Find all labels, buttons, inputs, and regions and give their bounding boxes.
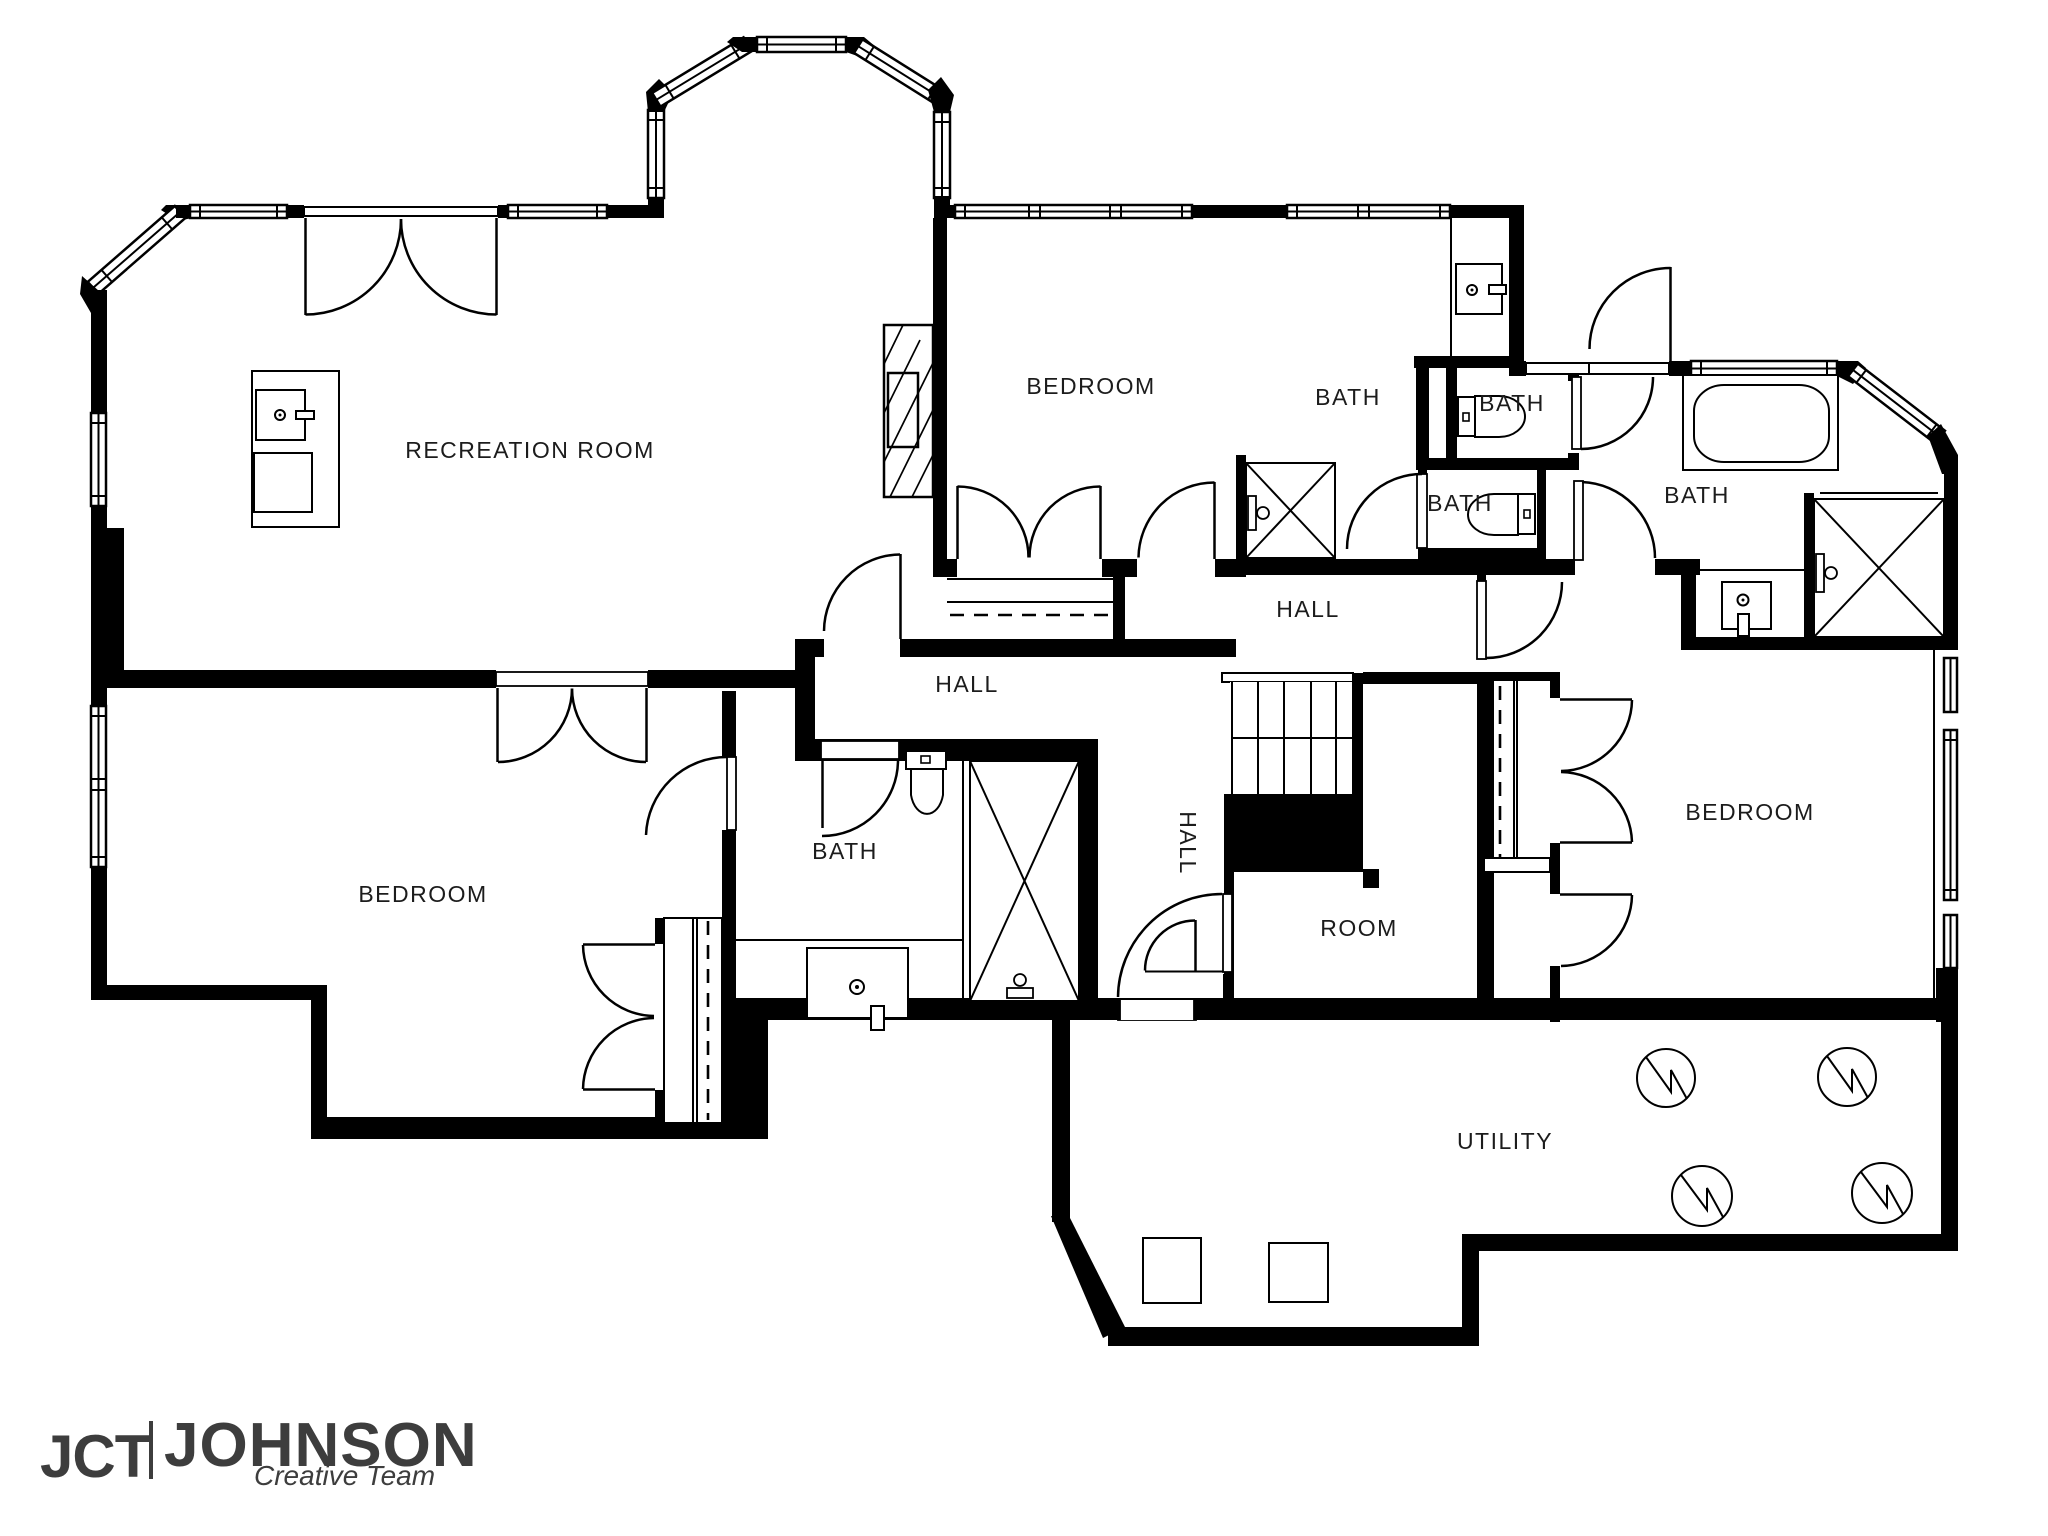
- svg-text:BATH: BATH: [1315, 384, 1381, 410]
- svg-text:UTILITY: UTILITY: [1457, 1128, 1553, 1154]
- svg-text:HALL: HALL: [1175, 811, 1201, 875]
- svg-text:HALL: HALL: [935, 671, 999, 697]
- svg-text:BEDROOM: BEDROOM: [358, 881, 487, 907]
- svg-text:JCT: JCT: [40, 1423, 151, 1490]
- svg-text:BEDROOM: BEDROOM: [1685, 799, 1814, 825]
- svg-text:Creative Team: Creative Team: [254, 1460, 435, 1491]
- svg-text:BATH: BATH: [1664, 482, 1730, 508]
- svg-text:HALL: HALL: [1276, 596, 1340, 622]
- svg-text:BATH: BATH: [812, 838, 878, 864]
- svg-text:BEDROOM: BEDROOM: [1026, 373, 1155, 399]
- svg-text:BATH: BATH: [1427, 490, 1493, 516]
- svg-text:RECREATION ROOM: RECREATION ROOM: [405, 437, 655, 463]
- svg-text:ROOM: ROOM: [1320, 915, 1398, 941]
- svg-text:BATH: BATH: [1479, 390, 1545, 416]
